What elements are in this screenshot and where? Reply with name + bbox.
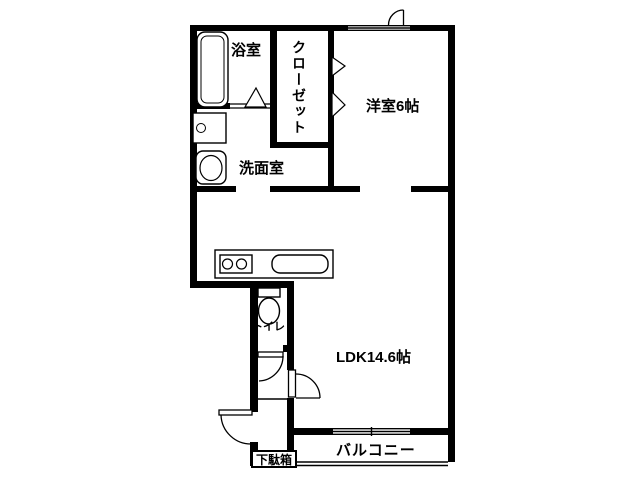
wall-closet-left xyxy=(270,25,277,147)
window-western-room-icon xyxy=(348,26,410,31)
kitchen-counter-icon xyxy=(215,250,333,278)
balcony-label: バルコニー xyxy=(336,443,416,458)
ldk-door-icon xyxy=(289,370,321,398)
closet-label: クローゼット xyxy=(292,40,306,136)
walls xyxy=(190,25,455,466)
wall-ldk-bottom-left xyxy=(288,428,333,435)
wall-hall-right-upper xyxy=(287,283,294,370)
floor-plan: 浴室 クローゼット 洋室6帖 洗面室 トイレ LDK14.6帖 バルコニー 下駄… xyxy=(0,0,640,480)
wall-closet-bottom xyxy=(270,142,334,148)
sink-icon xyxy=(272,255,328,273)
toilet-door-icon xyxy=(258,352,283,381)
wall-right-outer xyxy=(448,25,455,462)
western-room-label: 洋室6帖 xyxy=(366,99,419,114)
western-room-top-door-icon xyxy=(389,10,404,25)
wall-toilet-bottom-left xyxy=(250,345,258,352)
bathtub-icon xyxy=(197,32,228,107)
wall-kitchen-bottom xyxy=(190,281,294,288)
balcony-railing-icon xyxy=(294,462,448,466)
shoe-cabinet-label: 下駄箱 xyxy=(256,451,292,468)
bathroom-label: 浴室 xyxy=(231,43,261,58)
toilet-label: トイレ xyxy=(252,322,285,333)
wall-western-room-bottom xyxy=(411,186,455,192)
wall-top-left xyxy=(190,25,348,31)
washing-machine-icon xyxy=(196,151,226,184)
wall-ldk-bottom-right xyxy=(410,428,455,435)
window-balcony-icon xyxy=(333,427,410,436)
bathroom-folding-door-icon xyxy=(228,88,270,108)
entrance-door-icon xyxy=(219,410,252,444)
fixtures xyxy=(193,32,333,324)
toilet-icon xyxy=(258,288,280,324)
shoe-cabinet: 下駄箱 xyxy=(251,450,297,468)
wall-ldk-top-center xyxy=(270,186,360,192)
washroom-label: 洗面室 xyxy=(239,161,284,176)
floor-plan-drawing xyxy=(0,0,640,480)
wall-toilet-bottom-right xyxy=(283,345,294,352)
windows xyxy=(294,26,448,466)
vanity-icon xyxy=(193,113,226,143)
ldk-label: LDK14.6帖 xyxy=(336,350,411,365)
